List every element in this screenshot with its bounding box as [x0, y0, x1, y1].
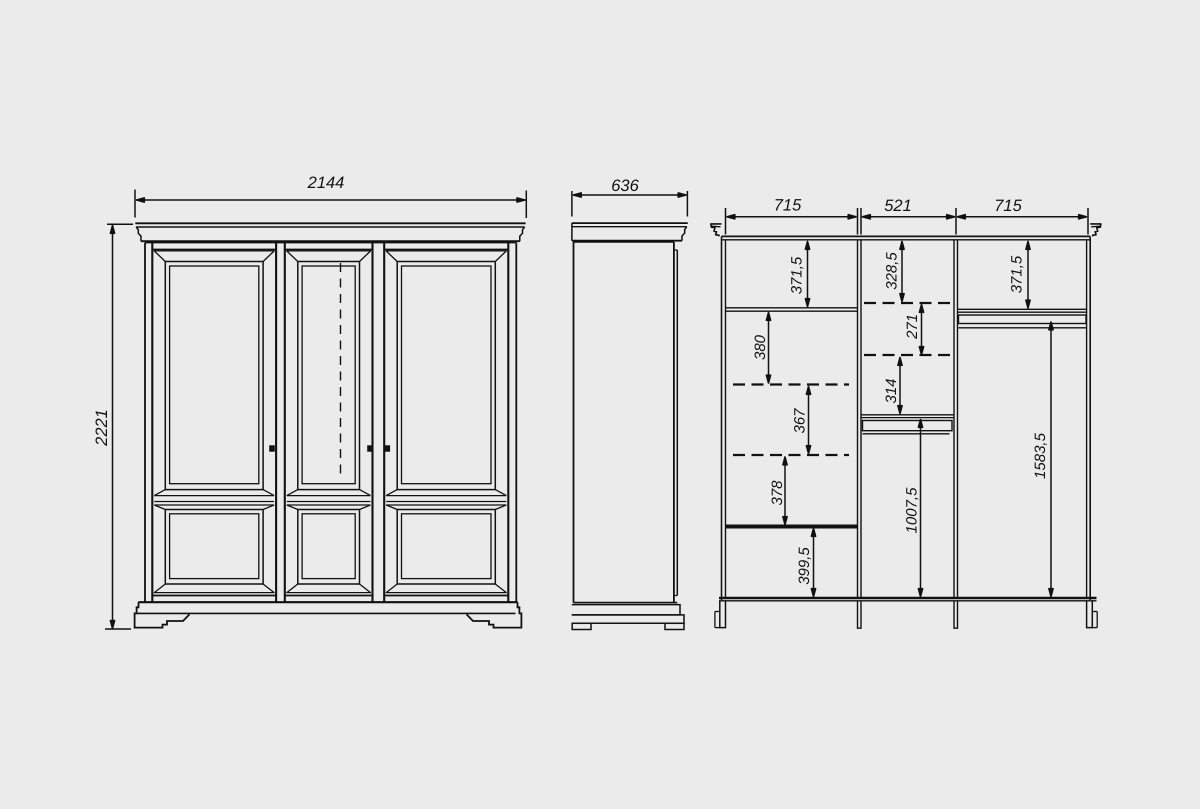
svg-text:314: 314: [883, 378, 900, 403]
svg-text:371,5: 371,5: [789, 256, 806, 294]
svg-text:715: 715: [994, 197, 1022, 215]
svg-text:399,5: 399,5: [796, 547, 813, 585]
svg-text:371,5: 371,5: [1009, 255, 1026, 293]
svg-text:367: 367: [792, 408, 809, 434]
svg-text:271: 271: [904, 314, 921, 340]
svg-text:328,5: 328,5: [884, 252, 901, 290]
svg-text:2221: 2221: [93, 409, 111, 447]
svg-text:715: 715: [774, 196, 802, 214]
svg-text:1583,5: 1583,5: [1032, 432, 1049, 479]
svg-text:521: 521: [884, 197, 912, 215]
svg-text:2144: 2144: [307, 174, 345, 192]
svg-text:636: 636: [611, 177, 639, 195]
svg-text:380: 380: [752, 334, 769, 360]
svg-text:378: 378: [769, 480, 786, 506]
svg-text:1007,5: 1007,5: [904, 487, 921, 534]
